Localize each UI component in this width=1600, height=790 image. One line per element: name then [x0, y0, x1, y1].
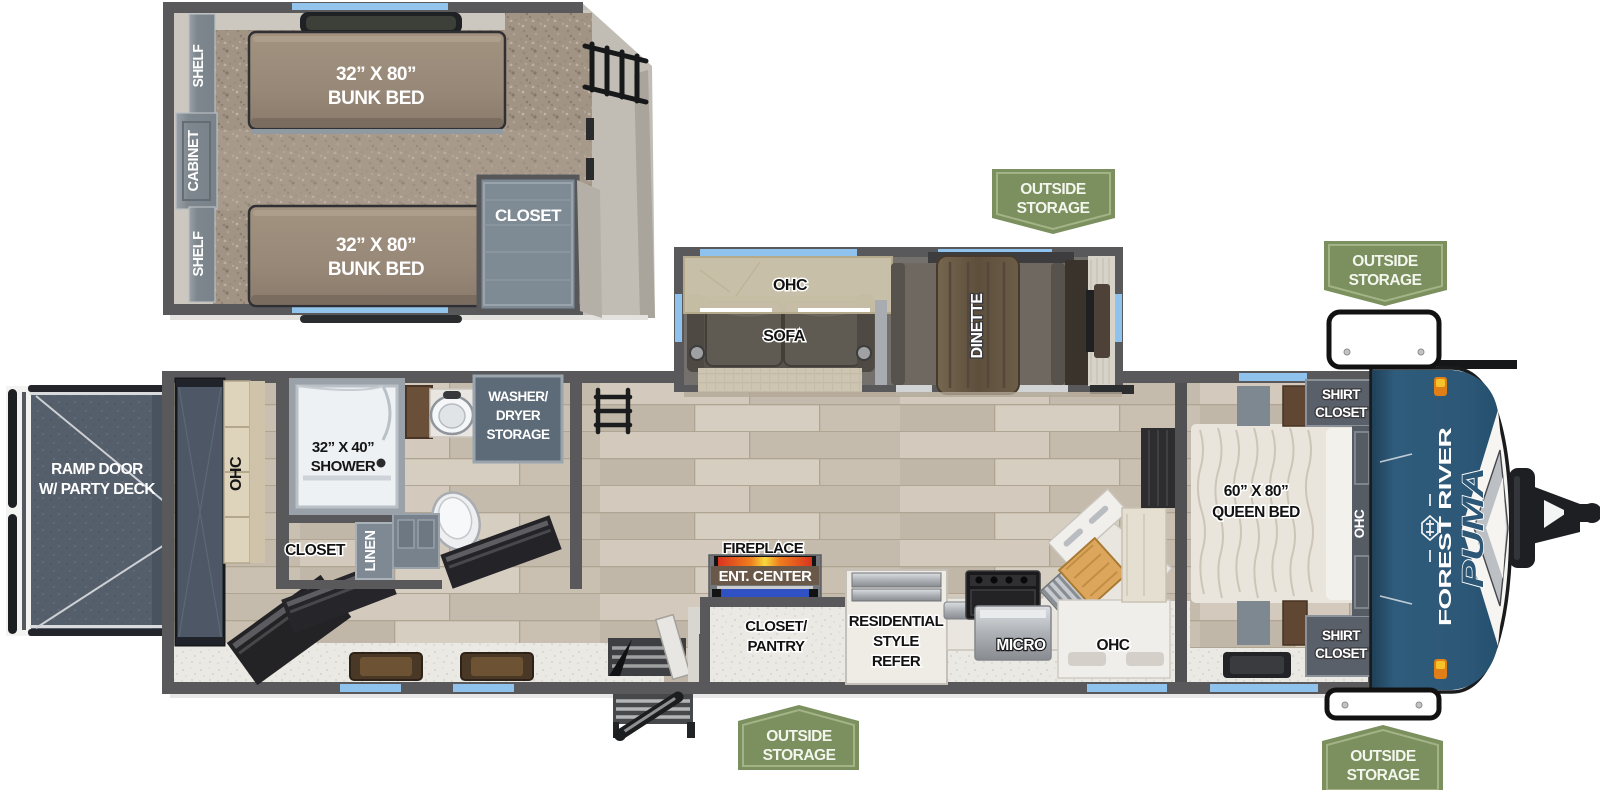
svg-text:STORAGE: STORAGE	[486, 427, 550, 442]
svg-text:SHELF: SHELF	[190, 44, 206, 88]
svg-text:PUMA: PUMA	[1457, 468, 1490, 588]
svg-text:SHELF: SHELF	[191, 231, 207, 277]
svg-text:BUNK BED: BUNK BED	[328, 88, 424, 109]
svg-text:OHC: OHC	[773, 277, 808, 294]
svg-text:32” X 40”: 32” X 40”	[312, 439, 374, 456]
svg-text:RESIDENTIAL: RESIDENTIAL	[849, 613, 944, 630]
svg-text:STORAGE: STORAGE	[763, 747, 836, 764]
svg-text:OUTSIDE: OUTSIDE	[1352, 253, 1418, 270]
svg-text:MICRO: MICRO	[996, 637, 1046, 654]
svg-text:ENT. CENTER: ENT. CENTER	[719, 568, 813, 585]
svg-text:CLOSET: CLOSET	[1315, 405, 1368, 420]
svg-text:CLOSET: CLOSET	[495, 206, 562, 225]
svg-text:32” X 80”: 32” X 80”	[336, 235, 416, 256]
svg-text:CLOSET/: CLOSET/	[745, 618, 808, 635]
svg-text:STORAGE: STORAGE	[1349, 272, 1422, 289]
svg-text:OUTSIDE: OUTSIDE	[1350, 748, 1416, 765]
svg-text:32” X 80”: 32” X 80”	[336, 64, 416, 85]
svg-text:RAMP DOOR: RAMP DOOR	[51, 461, 143, 478]
svg-text:PANTRY: PANTRY	[748, 638, 805, 655]
svg-text:SHIRT: SHIRT	[1322, 628, 1361, 643]
svg-text:DINETTE: DINETTE	[969, 293, 986, 359]
svg-text:SOFA: SOFA	[763, 328, 806, 345]
svg-text:REFER: REFER	[872, 653, 921, 670]
svg-text:OHC: OHC	[228, 456, 245, 491]
svg-text:STORAGE: STORAGE	[1347, 767, 1420, 784]
svg-text:60” X 80”: 60” X 80”	[1224, 483, 1288, 500]
svg-text:BUNK BED: BUNK BED	[328, 259, 424, 280]
svg-text:STORAGE: STORAGE	[1017, 200, 1090, 217]
svg-text:OUTSIDE: OUTSIDE	[766, 728, 832, 745]
svg-text:QUEEN BED: QUEEN BED	[1212, 504, 1300, 521]
svg-text:CLOSET: CLOSET	[1315, 646, 1368, 661]
svg-text:OHC: OHC	[1352, 509, 1367, 538]
svg-text:SHOWER: SHOWER	[311, 458, 376, 475]
svg-text:DRYER: DRYER	[496, 408, 541, 423]
svg-text:LINEN: LINEN	[363, 530, 379, 571]
svg-text:STYLE: STYLE	[873, 633, 919, 650]
svg-text:W/ PARTY DECK: W/ PARTY DECK	[39, 481, 156, 498]
svg-text:SHIRT: SHIRT	[1322, 387, 1361, 402]
svg-text:CLOSET: CLOSET	[285, 542, 346, 559]
svg-text:OHC: OHC	[1097, 637, 1130, 654]
svg-text:CABINET: CABINET	[186, 130, 202, 192]
svg-text:OUTSIDE: OUTSIDE	[1020, 181, 1086, 198]
svg-text:WASHER/: WASHER/	[488, 389, 548, 404]
